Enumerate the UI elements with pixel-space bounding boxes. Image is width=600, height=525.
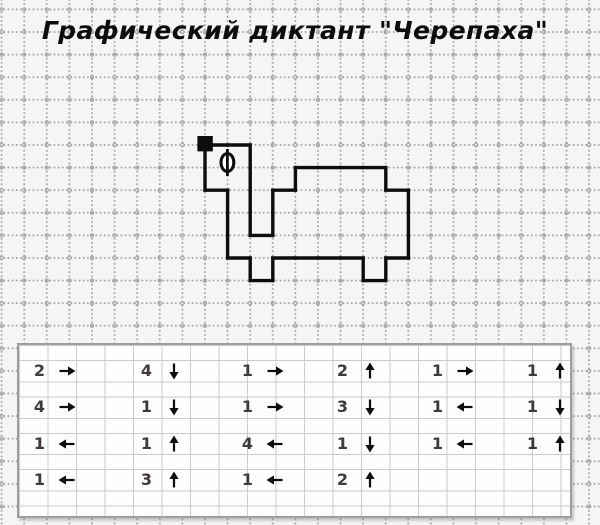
arrow-up-icon <box>361 362 379 380</box>
arrow-down-icon <box>165 398 183 416</box>
step-count: 2 <box>29 361 45 381</box>
instruction-cell: 1 <box>522 397 569 417</box>
step-count: 1 <box>332 434 348 454</box>
arrow-down-icon <box>551 398 569 416</box>
step-count: 1 <box>136 434 152 454</box>
step-count: 4 <box>237 434 253 454</box>
step-count: 1 <box>237 361 253 381</box>
arrow-right-icon <box>266 362 284 380</box>
step-count: 1 <box>136 397 152 417</box>
arrow-right-icon <box>266 398 284 416</box>
instruction-cell: 1 <box>522 361 569 381</box>
worksheet-page: Графический диктант "Черепаха" 241211411… <box>0 0 600 525</box>
step-count: 1 <box>29 434 45 454</box>
turtle-outline <box>205 145 408 281</box>
arrow-up-icon <box>165 435 183 453</box>
arrow-up-icon <box>361 471 379 489</box>
arrow-up-icon <box>551 435 569 453</box>
start-point-marker <box>197 136 212 151</box>
arrow-up-icon <box>165 471 183 489</box>
step-count: 3 <box>332 397 348 417</box>
arrow-down-icon <box>361 398 379 416</box>
instruction-cell: 1 <box>237 397 284 417</box>
arrow-right-icon <box>58 398 76 416</box>
instruction-cell: 1 <box>29 470 76 490</box>
step-count: 1 <box>29 470 45 490</box>
arrow-left-icon <box>456 398 474 416</box>
instruction-cell: 1 <box>136 434 183 454</box>
arrow-up-icon <box>551 362 569 380</box>
step-count: 2 <box>332 361 348 381</box>
arrow-left-icon <box>266 435 284 453</box>
arrow-right-icon <box>456 362 474 380</box>
step-count: 2 <box>332 470 348 490</box>
turtle-drawing <box>188 128 420 290</box>
page-title: Графический диктант "Черепаха" <box>0 16 595 45</box>
step-count: 4 <box>29 397 45 417</box>
instruction-table: 2412114113111141111312 <box>17 343 572 518</box>
instruction-cell: 1 <box>237 361 284 381</box>
instruction-cell: 1 <box>427 361 474 381</box>
instruction-cell: 4 <box>29 397 76 417</box>
step-count: 4 <box>136 361 152 381</box>
instruction-cell: 4 <box>136 361 183 381</box>
arrow-down-icon <box>165 362 183 380</box>
step-count: 1 <box>522 361 538 381</box>
instruction-cell: 4 <box>237 434 284 454</box>
instruction-cell: 1 <box>427 434 474 454</box>
instruction-cell: 3 <box>332 397 379 417</box>
arrow-left-icon <box>266 471 284 489</box>
instruction-cell: 1 <box>427 397 474 417</box>
arrow-right-icon <box>58 362 76 380</box>
arrow-down-icon <box>361 435 379 453</box>
arrow-left-icon <box>58 471 76 489</box>
instruction-cell: 1 <box>29 434 76 454</box>
arrow-left-icon <box>58 435 76 453</box>
instruction-cell: 3 <box>136 470 183 490</box>
step-count: 1 <box>427 434 443 454</box>
step-count: 1 <box>237 397 253 417</box>
instruction-cell: 2 <box>332 470 379 490</box>
instruction-cell: 1 <box>522 434 569 454</box>
instruction-cell: 1 <box>136 397 183 417</box>
turtle-eye <box>221 149 234 176</box>
step-count: 3 <box>136 470 152 490</box>
instruction-cell: 2 <box>29 361 76 381</box>
step-count: 1 <box>427 361 443 381</box>
instruction-cell: 1 <box>332 434 379 454</box>
arrow-left-icon <box>456 435 474 453</box>
instruction-cell: 2 <box>332 361 379 381</box>
instruction-cell: 1 <box>237 470 284 490</box>
step-count: 1 <box>522 397 538 417</box>
step-count: 1 <box>427 397 443 417</box>
step-count: 1 <box>522 434 538 454</box>
step-count: 1 <box>237 470 253 490</box>
